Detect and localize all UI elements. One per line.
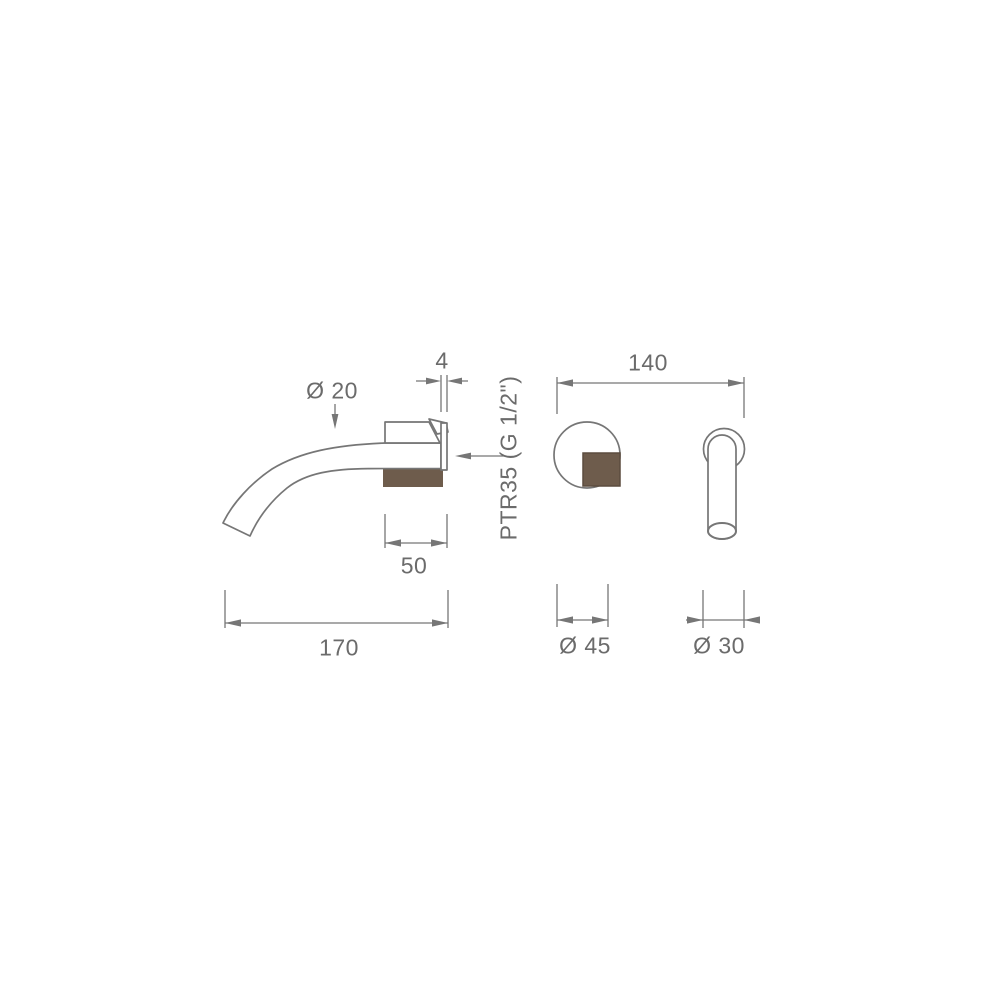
dim-50: [385, 514, 447, 548]
dim-spout-diameter-label: Ø 20: [306, 378, 358, 405]
valve-cartridge-fill: [583, 453, 620, 486]
front-view-valve: [554, 422, 620, 488]
dim-valve-diameter-label: Ø 45: [559, 633, 611, 660]
dim-flange-diameter-label: Ø 30: [693, 633, 745, 660]
dim-valve-spacing-label: 140: [628, 350, 668, 377]
side-view-spout: [223, 419, 448, 536]
leader-diameter-20: [332, 404, 339, 429]
dim-4: [416, 375, 468, 412]
spout-outlet-ellipse: [708, 523, 736, 539]
front-view-spout: [704, 429, 745, 540]
dim-plate-thickness-label: 4: [435, 348, 448, 375]
spout-tube-outline: [223, 443, 441, 536]
thread-spec-label: PTR35 (G 1/2"): [496, 376, 523, 541]
wall-plate: [441, 423, 447, 470]
technical-drawing-canvas: 4 Ø 20 140 PTR35 (G 1/2") 50 170 Ø 45 Ø …: [0, 0, 1000, 1000]
dim-45: [557, 584, 608, 627]
dim-spout-reach-label: 170: [319, 635, 359, 662]
dim-mount-depth-label: 50: [401, 553, 428, 580]
dim-30: [686, 590, 760, 628]
wall-section-fill: [383, 467, 443, 487]
dim-140: [557, 377, 744, 418]
dim-170: [225, 590, 448, 628]
